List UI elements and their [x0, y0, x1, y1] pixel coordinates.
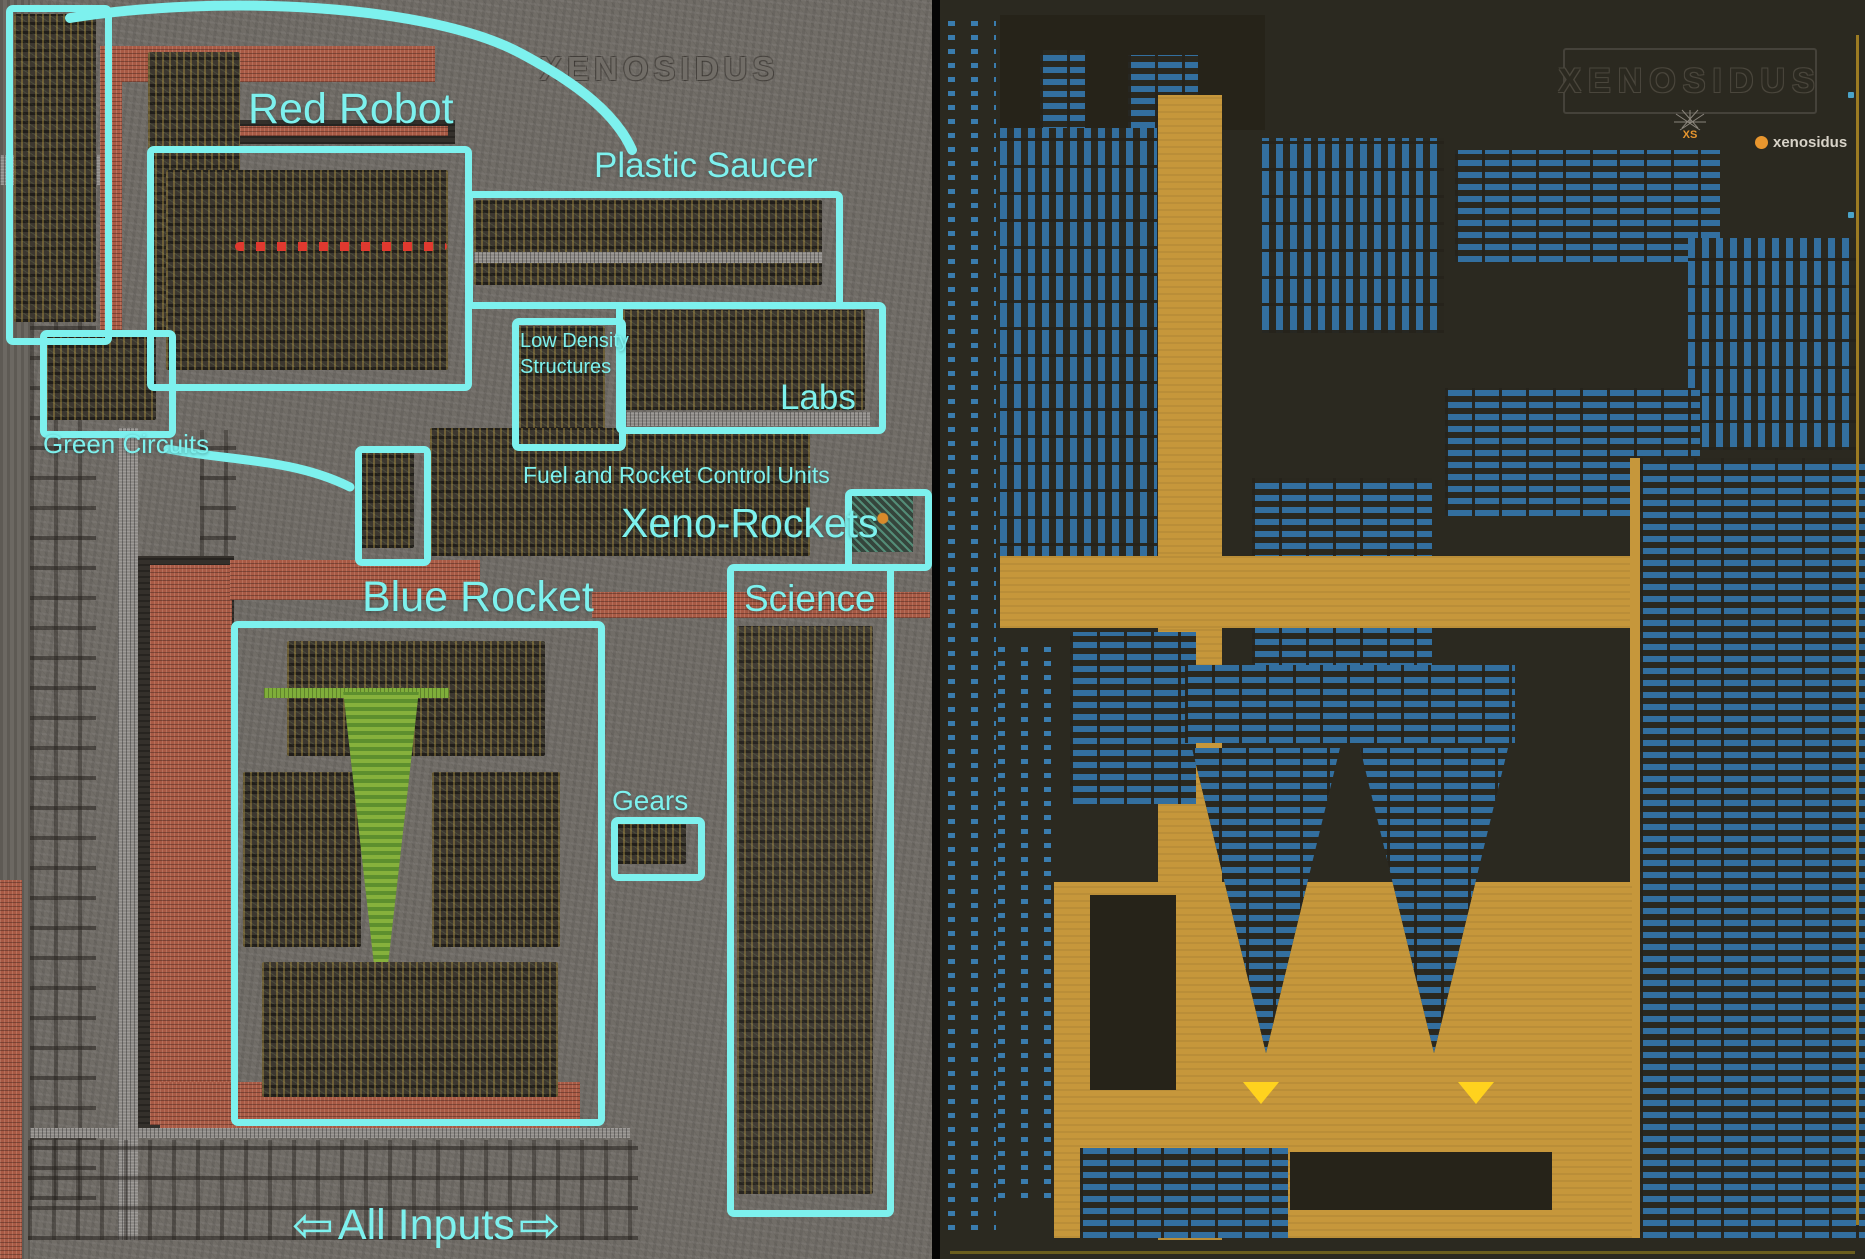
label-all-inputs: All Inputs — [338, 1201, 515, 1250]
annotation-box-red-robot — [147, 146, 472, 391]
map-logo-frame: XENOSIDUS — [1563, 48, 1817, 114]
attribution: xenosidus — [1755, 134, 1847, 151]
belt-red — [0, 880, 22, 1259]
starburst-icon: XS — [1668, 108, 1712, 146]
watermark-logo: XENOSIDUS — [540, 50, 779, 88]
map-machine-block — [1185, 665, 1515, 743]
attribution-name: xenosidus — [1773, 134, 1847, 151]
arrow-left-icon: ⇦ — [292, 1200, 334, 1250]
map-dot — [1848, 212, 1854, 218]
game-screenshot-panel: XENOSIDUS Red Robot Plastic Saucer Green… — [0, 0, 932, 1259]
label-low-density-line2: Structures — [520, 356, 611, 379]
panel-divider — [932, 0, 940, 1259]
belt-red — [150, 565, 232, 1125]
label-plastic-saucer: Plastic Saucer — [594, 146, 818, 186]
label-blue-rocket: Blue Rocket — [362, 573, 594, 622]
label-labs: Labs — [780, 378, 856, 418]
map-belt-columns — [998, 642, 1054, 1198]
map-edge-line — [950, 1251, 1855, 1254]
annotation-box-green-circuits-area — [40, 330, 176, 438]
map-machine-block — [1455, 150, 1720, 262]
annotation-box-plastic-saucer — [466, 191, 843, 309]
attribution-dot-icon — [1755, 136, 1768, 149]
map-edge-line — [1856, 35, 1859, 1225]
map-machine-block — [1688, 238, 1856, 450]
annotation-box-gears — [611, 817, 705, 881]
map-belt-columns — [948, 20, 996, 1230]
map-dark-area — [1290, 1152, 1552, 1210]
label-red-robot: Red Robot — [248, 85, 454, 134]
label-fuel-rocket-control: Fuel and Rocket Control Units — [523, 462, 830, 489]
arrow-right-icon: ⇨ — [519, 1200, 561, 1250]
belt-gray — [30, 1128, 630, 1138]
label-all-inputs-group: ⇦ All Inputs ⇨ — [292, 1200, 561, 1250]
label-xeno-rockets: Xeno-Rockets — [621, 500, 879, 547]
annotation-box-top-left — [6, 5, 112, 345]
belt-gray — [118, 428, 138, 1240]
label-science: Science — [744, 578, 876, 620]
map-logo-text: XENOSIDUS — [1558, 62, 1821, 101]
label-low-density-line1: Low Density — [520, 330, 629, 353]
map-dot — [1848, 92, 1854, 98]
map-machine-block — [1000, 128, 1157, 600]
map-machine-block — [1080, 1148, 1288, 1238]
map-machine-block — [1262, 138, 1444, 333]
map-machine-block — [1070, 632, 1196, 804]
annotation-box-green-circuits — [355, 446, 431, 566]
map-machine-stack — [1630, 458, 1865, 1238]
label-gears: Gears — [612, 785, 688, 817]
map-dark-area — [1090, 895, 1176, 1090]
annotation-box-blue-rocket — [231, 621, 605, 1126]
label-green-circuits: Green Circuits — [43, 429, 209, 460]
map-view-panel: XENOSIDUS XS xenosidus — [940, 0, 1865, 1259]
annotation-box-science — [727, 564, 894, 1217]
starburst-xs-text: XS — [1683, 129, 1698, 141]
